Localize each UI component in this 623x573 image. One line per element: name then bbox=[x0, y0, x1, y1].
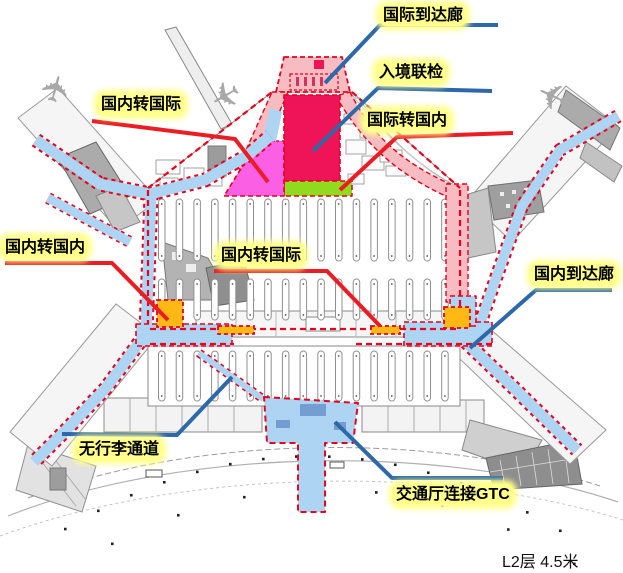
floor-level-note: L2层 4.5米 bbox=[502, 548, 579, 572]
label-gtc-connection: 交通厅连接GTC bbox=[393, 484, 513, 505]
airplane-icon: ✈ bbox=[202, 70, 249, 121]
terminal-floor-plan-page: ✈ ✈ ✈ 国际到达廊 入境联检 国际转国内 国内转国际 国内转国内 国内转国际… bbox=[0, 0, 623, 573]
label-domestic-to-intl-top: 国内转国际 bbox=[98, 94, 184, 115]
zone-immigration bbox=[284, 95, 340, 181]
label-immigration-inspection: 入境联检 bbox=[376, 62, 446, 83]
transfer-strip-right bbox=[371, 326, 400, 334]
label-international-arrival-corridor: 国际到达廊 bbox=[380, 5, 466, 26]
transfer-strip-left bbox=[218, 326, 254, 334]
label-intl-to-domestic: 国际转国内 bbox=[364, 110, 450, 131]
terminal-floor-plan: ✈ ✈ ✈ bbox=[0, 0, 623, 573]
zone-salmon-right-strip bbox=[446, 184, 468, 302]
label-domestic-to-intl-center: 国内转国际 bbox=[218, 245, 304, 266]
label-domestic-arrival-corridor: 国内到达廊 bbox=[531, 264, 617, 285]
transfer-node-right bbox=[444, 307, 470, 328]
label-domestic-to-domestic: 国内转国内 bbox=[2, 237, 88, 258]
label-no-baggage-passage: 无行李通道 bbox=[76, 439, 162, 460]
